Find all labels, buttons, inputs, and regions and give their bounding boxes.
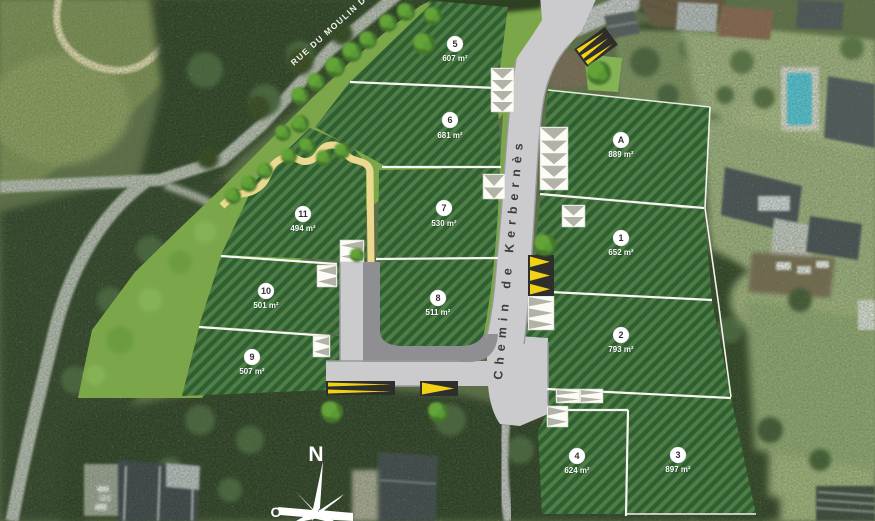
- svg-text:4: 4: [574, 451, 579, 461]
- svg-text:6: 6: [447, 115, 452, 125]
- svg-text:5: 5: [452, 39, 457, 49]
- svg-text:511 m²: 511 m²: [426, 308, 451, 317]
- svg-text:3: 3: [675, 450, 680, 460]
- svg-text:681 m²: 681 m²: [437, 131, 463, 140]
- svg-text:N: N: [308, 443, 323, 466]
- svg-text:889 m²: 889 m²: [608, 150, 634, 159]
- svg-text:2: 2: [618, 330, 623, 340]
- svg-text:530 m²: 530 m²: [431, 219, 457, 228]
- svg-text:A: A: [618, 135, 625, 145]
- svg-text:11: 11: [298, 209, 308, 219]
- svg-text:O: O: [271, 504, 282, 520]
- svg-text:652 m²: 652 m²: [608, 248, 634, 257]
- svg-text:8: 8: [435, 293, 440, 303]
- svg-text:607 m²: 607 m²: [442, 54, 468, 63]
- svg-text:793 m²: 793 m²: [608, 345, 634, 354]
- svg-text:507 m²: 507 m²: [239, 367, 265, 376]
- svg-text:10: 10: [261, 286, 271, 296]
- svg-text:897 m²: 897 m²: [665, 465, 691, 474]
- svg-text:1: 1: [618, 233, 623, 243]
- svg-text:7: 7: [441, 203, 446, 213]
- svg-text:494 m²: 494 m²: [290, 224, 316, 233]
- svg-text:501 m²: 501 m²: [253, 301, 279, 310]
- svg-text:9: 9: [249, 352, 254, 362]
- svg-text:624 m²: 624 m²: [564, 466, 590, 475]
